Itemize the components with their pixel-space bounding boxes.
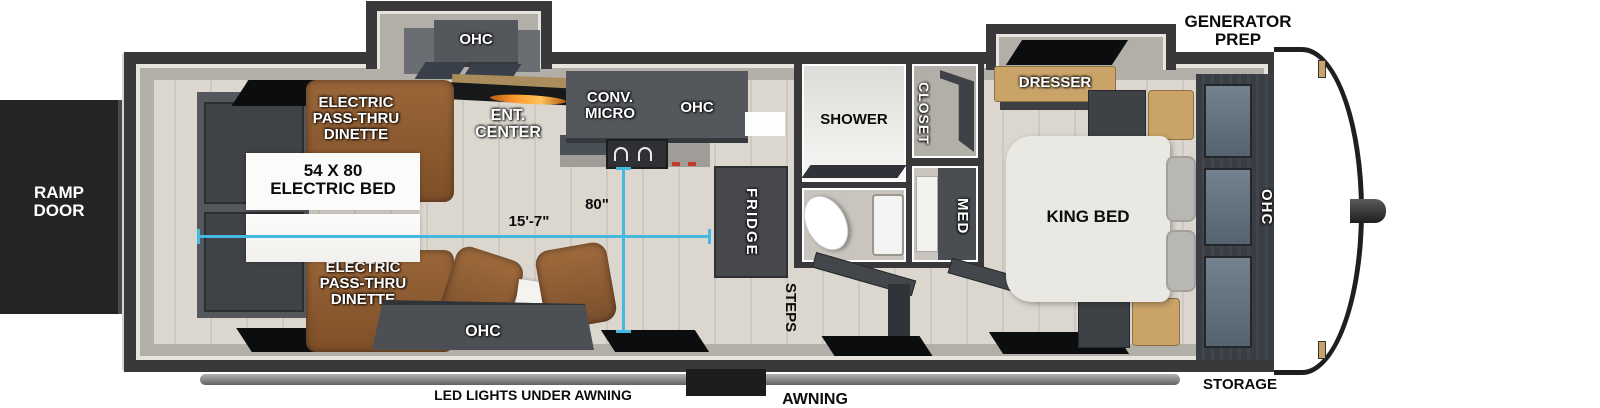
king-bed-label: KING BED — [1006, 208, 1170, 226]
conv-micro-label-line2: MICRO — [572, 106, 648, 122]
length-dimension-line — [198, 235, 710, 238]
shower-door — [801, 165, 906, 178]
ent-ohc-cabinet: OHC — [434, 20, 518, 67]
king-bed: KING BED — [1006, 136, 1170, 302]
dresser-label: DRESSER — [995, 75, 1115, 91]
interior-wall-left — [140, 68, 154, 356]
kitchen-ohc-label: OHC — [672, 100, 722, 116]
nightstand-bottom — [1132, 298, 1180, 346]
electric-bed-platform — [246, 214, 420, 262]
sofa-ohc-cabinet: OHC — [372, 300, 594, 350]
kitchen-window-bottom — [601, 330, 709, 352]
width-dimension-line — [622, 168, 625, 332]
ramp-door: RAMP DOOR — [0, 100, 122, 314]
awning-marker — [686, 369, 766, 396]
ent-ohc-label: OHC — [434, 32, 518, 48]
stove-indicator — [672, 162, 680, 166]
length-dim-cap-right — [708, 229, 711, 244]
dinette-bottom-label-line1: ELECTRIC — [305, 260, 421, 276]
led-lights-label: LED LIGHTS UNDER AWNING — [420, 388, 646, 403]
bedroom-slideout-window — [1006, 40, 1128, 65]
dinette-bottom-label-line2: PASS-THRU — [305, 276, 421, 292]
ent-center-label-line1: ENT. — [458, 107, 558, 124]
wardrobe-glass-middle — [1204, 168, 1252, 246]
fridge-label: FRIDGE — [716, 168, 786, 276]
bedroom-cabinet-top — [1088, 90, 1146, 140]
entry-door-opening — [745, 112, 785, 136]
bedroom-ohc-label: OHC — [1258, 180, 1274, 234]
length-dimension-label: 15'-7" — [488, 214, 570, 230]
storage-label: STORAGE — [1192, 377, 1288, 393]
bedroom-cabinet-bottom — [1078, 300, 1130, 348]
electric-bed-label-line2: ELECTRIC BED — [246, 180, 420, 198]
fridge: FRIDGE — [714, 166, 788, 278]
pillow-bottom — [1166, 230, 1196, 292]
med-room: MED — [912, 166, 978, 262]
cap-hinge-bottom — [1318, 341, 1326, 359]
width-dimension-label: 80" — [576, 197, 618, 213]
entry-window-bottom — [822, 336, 933, 356]
ent-center-label-line2: CENTER — [458, 124, 558, 141]
steps-label: STEPS — [782, 272, 798, 344]
generator-prep-label-line2: PREP — [1172, 31, 1304, 49]
stove — [606, 139, 668, 169]
conv-micro-label-line1: CONV. — [572, 90, 648, 106]
front-wardrobe: OHC — [1196, 74, 1278, 360]
ramp-door-label-line2: DOOR — [0, 202, 118, 220]
nightstand-top — [1148, 90, 1194, 140]
stove-indicator-2 — [688, 162, 696, 166]
bath-vanity — [872, 194, 904, 256]
width-dim-cap-bottom — [616, 330, 631, 333]
closet-shelf — [940, 70, 974, 152]
dinette-top-label-line1: ELECTRIC — [298, 95, 414, 111]
width-dim-cap-top — [616, 167, 631, 170]
length-dim-cap-left — [197, 229, 200, 244]
hitch — [1350, 199, 1386, 223]
ramp-door-label-line1: RAMP — [0, 184, 118, 202]
electric-bed-label-line1: 54 X 80 — [246, 162, 420, 180]
closet-label: CLOSET — [916, 70, 931, 156]
cap-hinge-top — [1318, 60, 1326, 78]
entry-door-panel-2 — [888, 284, 910, 340]
generator-prep-label-line1: GENERATOR — [1172, 13, 1304, 31]
closet-room: CLOSET — [912, 64, 978, 158]
sofa-ohc-label: OHC — [372, 323, 594, 340]
med-sink — [916, 176, 938, 252]
shower-room: SHOWER — [802, 64, 906, 182]
wardrobe-glass-bottom — [1204, 256, 1252, 348]
dinette-top-label-line2: PASS-THRU — [298, 111, 414, 127]
floorplan-canvas: RAMP DOOR OHC ENT. CENTER ELECTRIC PASS-… — [0, 0, 1600, 408]
shower-label: SHOWER — [804, 112, 904, 128]
electric-bed-label-box: 54 X 80 ELECTRIC BED — [246, 153, 420, 210]
pillow-top — [1166, 156, 1196, 222]
wardrobe-glass-top — [1204, 84, 1252, 158]
awning-label: AWNING — [768, 391, 862, 408]
med-label: MED — [954, 182, 970, 250]
dinette-top-label-line3: DINETTE — [298, 127, 414, 143]
